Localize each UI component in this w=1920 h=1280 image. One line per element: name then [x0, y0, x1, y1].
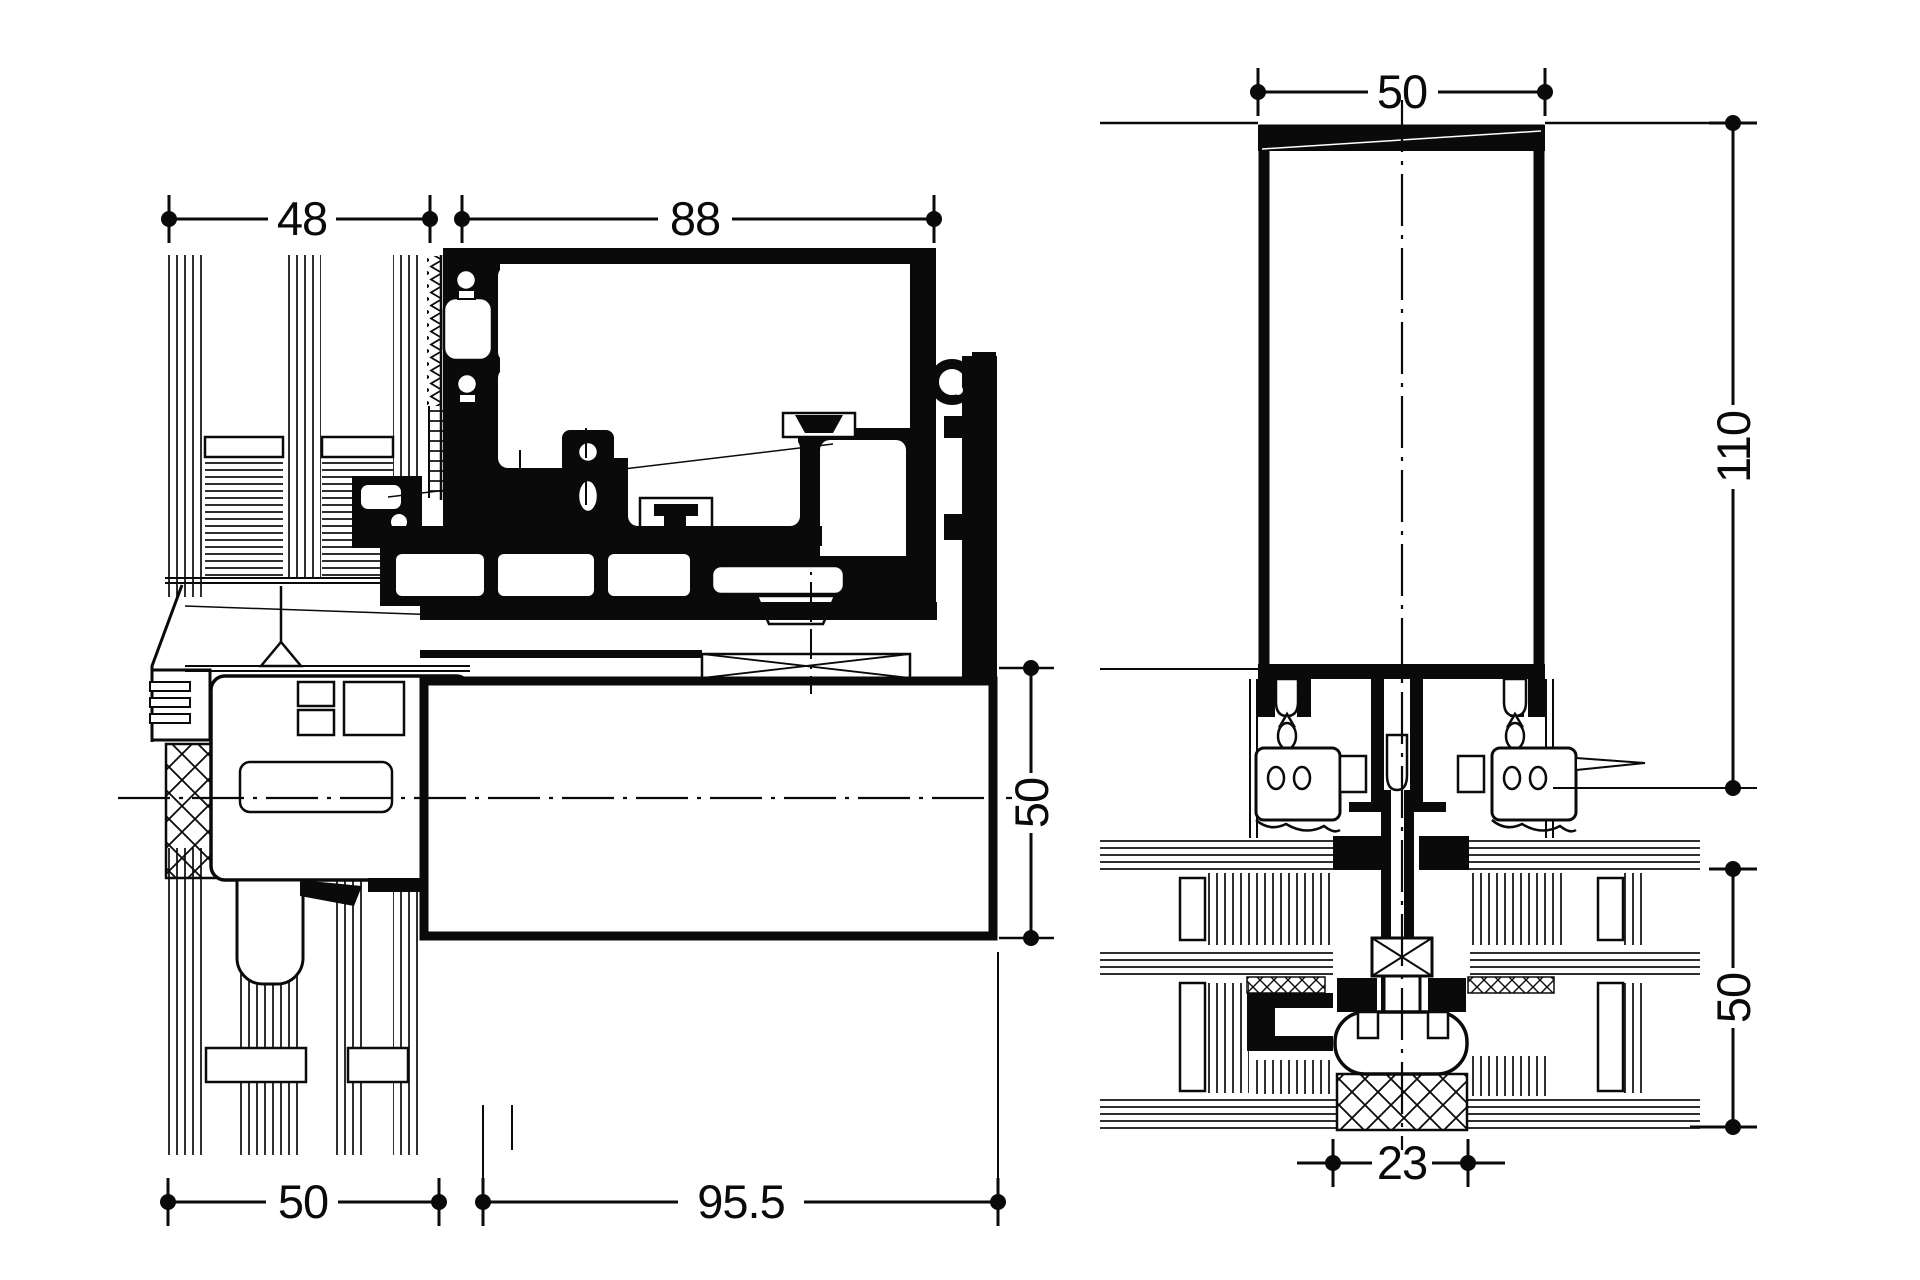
dimension-23: 23	[1297, 1136, 1505, 1189]
dim-label-23: 23	[1377, 1136, 1427, 1189]
dim-label-50-bottom: 50	[278, 1175, 328, 1228]
dim-label-50-top: 50	[1377, 65, 1427, 118]
glass-hatch	[285, 255, 321, 577]
dim-label-48: 48	[277, 192, 327, 245]
dimension-50-bottom: 50	[160, 1175, 447, 1228]
glass-hatch	[168, 255, 204, 597]
dimension-48: 48	[161, 192, 438, 245]
drawing-sheet: 48 88 50 50	[0, 0, 1920, 1280]
glazing-unit-box	[424, 681, 993, 936]
dimension-95-5: 95.5	[475, 952, 1006, 1228]
technical-drawing: 48 88 50 50	[0, 0, 1920, 1280]
dim-label-95-5: 95.5	[697, 1175, 784, 1228]
dimension-50-right: 50	[999, 660, 1058, 946]
right-section-view: 50 110 50 23	[1100, 65, 1760, 1189]
foam-tape-zigzag	[427, 256, 441, 406]
dimension-110: 110	[1553, 115, 1760, 796]
dim-label-88: 88	[670, 192, 720, 245]
left-section-view: 48 88 50 50	[118, 192, 1058, 1228]
dim-label-110: 110	[1707, 411, 1760, 483]
dimension-88: 88	[454, 192, 942, 245]
dimension-50-lower: 50	[1690, 861, 1760, 1135]
dim-label-50-right: 50	[1005, 778, 1058, 828]
dimension-50-top: 50	[1250, 65, 1553, 118]
dim-label-50-lower: 50	[1707, 973, 1760, 1023]
panel-hatch	[205, 459, 283, 577]
